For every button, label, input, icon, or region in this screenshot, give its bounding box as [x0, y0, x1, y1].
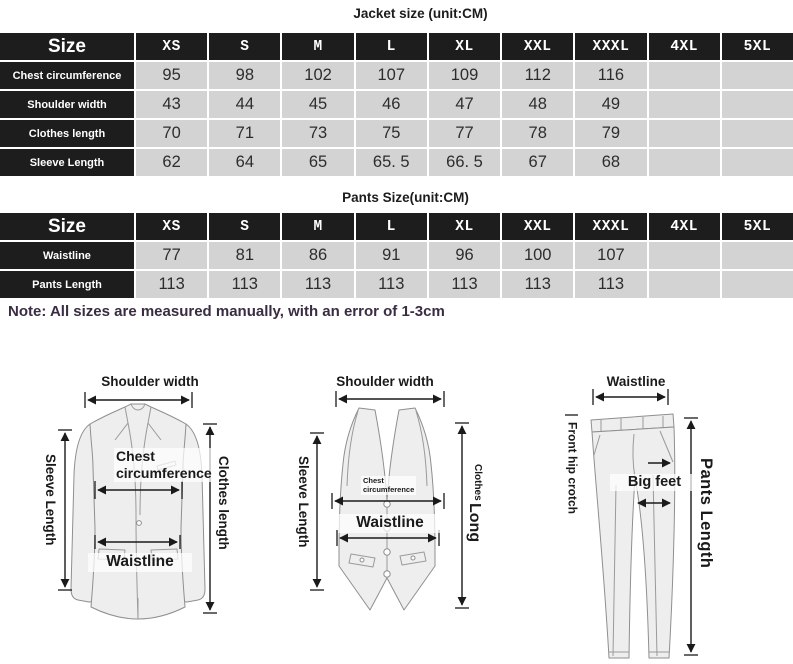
cell-chest-circumference-4xl	[649, 62, 720, 89]
cell-sleeve-length-xl: 66. 5	[429, 149, 500, 176]
cell-clothes-length-5xl	[722, 120, 793, 147]
jacket-sleeve-length-label: Sleeve Length	[42, 454, 58, 546]
cell-shoulder-width-l: 46	[356, 91, 427, 118]
row-label-sleeve-length: Sleeve Length	[0, 149, 134, 176]
cell-sleeve-length-s: 64	[209, 149, 280, 176]
jacket-clothes-length-label: Clothes length	[215, 456, 231, 550]
cell-chest-circumference-5xl	[722, 62, 793, 89]
vest-long-label: Long	[465, 503, 484, 542]
cell-clothes-length-s: 71	[209, 120, 280, 147]
column-header-xs: XS	[136, 213, 207, 240]
cell-pants-length-xl: 113	[429, 271, 500, 298]
column-header-xxxl: XXXL	[575, 213, 646, 240]
column-header-xxxl: XXXL	[575, 33, 646, 60]
cell-waistline-s: 81	[209, 242, 280, 269]
cell-shoulder-width-xxl: 48	[502, 91, 573, 118]
cell-waistline-xs: 77	[136, 242, 207, 269]
cell-waistline-m: 86	[282, 242, 353, 269]
cell-chest-circumference-l: 107	[356, 62, 427, 89]
cell-chest-circumference-xs: 95	[136, 62, 207, 89]
cell-waistline-l: 91	[356, 242, 427, 269]
cell-shoulder-width-xxxl: 49	[575, 91, 646, 118]
cell-pants-length-m: 113	[282, 271, 353, 298]
column-header-m: M	[282, 33, 353, 60]
cell-sleeve-length-xxxl: 68	[575, 149, 646, 176]
pants-size-table: SizeXSSMLXLXXLXXXL4XL5XLWaistline7781869…	[0, 213, 793, 298]
column-header-5xl: 5XL	[722, 33, 793, 60]
cell-pants-length-5xl	[722, 271, 793, 298]
column-header-l: L	[356, 213, 427, 240]
column-header-5xl: 5XL	[722, 213, 793, 240]
cell-shoulder-width-s: 44	[209, 91, 280, 118]
vest-clothes-label: Clothes	[471, 464, 483, 501]
size-corner-cell: Size	[0, 33, 134, 60]
vest-shoulder-width-label: Shoulder width	[330, 374, 440, 390]
cell-sleeve-length-xs: 62	[136, 149, 207, 176]
vest-drawing	[339, 408, 435, 610]
column-header-4xl: 4XL	[649, 213, 720, 240]
sleeve-length-arrow	[58, 430, 72, 590]
cell-sleeve-length-l: 65. 5	[356, 149, 427, 176]
row-label-shoulder-width: Shoulder width	[0, 91, 134, 118]
column-header-xxl: XXL	[502, 33, 573, 60]
cell-clothes-length-xxl: 78	[502, 120, 573, 147]
cell-pants-length-4xl	[649, 271, 720, 298]
cell-clothes-length-m: 73	[282, 120, 353, 147]
cell-chest-circumference-xxl: 112	[502, 62, 573, 89]
pants-measurement-diagram: Waistline Front hip crotch Big feet Pant…	[555, 372, 793, 664]
column-header-m: M	[282, 213, 353, 240]
pants-length-label: Pants Length	[695, 458, 715, 569]
cell-clothes-length-4xl	[649, 120, 720, 147]
row-label-clothes-length: Clothes length	[0, 120, 134, 147]
waistline-arrow	[593, 389, 668, 405]
jacket-chest-label-line2: circumference	[116, 465, 212, 482]
cell-chest-circumference-xxxl: 116	[575, 62, 646, 89]
cell-shoulder-width-xs: 43	[136, 91, 207, 118]
cell-chest-circumference-s: 98	[209, 62, 280, 89]
column-header-l: L	[356, 33, 427, 60]
jacket-shoulder-width-label: Shoulder width	[75, 374, 225, 390]
column-header-s: S	[209, 213, 280, 240]
cell-waistline-5xl	[722, 242, 793, 269]
column-header-xs: XS	[136, 33, 207, 60]
cell-waistline-xxxl: 107	[575, 242, 646, 269]
cell-clothes-length-xl: 77	[429, 120, 500, 147]
column-header-xxl: XXL	[502, 213, 573, 240]
cell-shoulder-width-xl: 47	[429, 91, 500, 118]
jacket-chest-label-line1: Chest	[116, 448, 212, 465]
pants-front-hip-crotch-label: Front hip crotch	[565, 422, 579, 514]
column-header-xl: XL	[429, 213, 500, 240]
cell-clothes-length-xs: 70	[136, 120, 207, 147]
pants-diagram-art	[555, 372, 793, 664]
column-header-xl: XL	[429, 33, 500, 60]
pants-table-title: Pants Size(unit:CM)	[9, 190, 793, 205]
cell-pants-length-l: 113	[356, 271, 427, 298]
pants-drawing	[591, 414, 675, 658]
size-chart-page: Jacket size (unit:CM) SizeXSSMLXLXXLXXXL…	[0, 0, 793, 664]
pants-waistline-label: Waistline	[596, 374, 676, 390]
jacket-size-table: SizeXSSMLXLXXLXXXL4XL5XLChest circumfere…	[0, 33, 793, 176]
jacket-table-title: Jacket size (unit:CM)	[24, 6, 793, 21]
column-header-s: S	[209, 33, 280, 60]
vest-measurement-diagram: Shoulder width Sleeve Length Chest circu…	[283, 372, 535, 664]
cell-chest-circumference-xl: 109	[429, 62, 500, 89]
pants-big-feet-label: Big feet	[610, 474, 699, 491]
vest-chest-label-line1: Chest	[363, 476, 414, 485]
vest-chest-label-line2: circumference	[363, 485, 414, 494]
jacket-measurement-diagram: Shoulder width Sleeve Length Chest circu…	[30, 372, 260, 664]
sleeve-length-arrow	[310, 433, 324, 590]
column-header-4xl: 4XL	[649, 33, 720, 60]
row-label-chest-circumference: Chest circumference	[0, 62, 134, 89]
cell-waistline-4xl	[649, 242, 720, 269]
cell-pants-length-xs: 113	[136, 271, 207, 298]
cell-pants-length-xxl: 113	[502, 271, 573, 298]
vest-waistline-label: Waistline	[338, 514, 442, 533]
cell-clothes-length-xxxl: 79	[575, 120, 646, 147]
jacket-waistline-label: Waistline	[88, 553, 192, 572]
vest-sleeve-length-label: Sleeve Length	[295, 456, 311, 548]
row-label-pants-length: Pants Length	[0, 271, 134, 298]
suit-jacket-drawing	[71, 404, 205, 619]
shoulder-width-arrow	[336, 391, 444, 407]
cell-waistline-xxl: 100	[502, 242, 573, 269]
cell-pants-length-xxxl: 113	[575, 271, 646, 298]
cell-shoulder-width-5xl	[722, 91, 793, 118]
cell-pants-length-s: 113	[209, 271, 280, 298]
cell-clothes-length-l: 75	[356, 120, 427, 147]
cell-sleeve-length-5xl	[722, 149, 793, 176]
cell-sleeve-length-xxl: 67	[502, 149, 573, 176]
cell-waistline-xl: 96	[429, 242, 500, 269]
cell-chest-circumference-m: 102	[282, 62, 353, 89]
cell-sleeve-length-m: 65	[282, 149, 353, 176]
row-label-waistline: Waistline	[0, 242, 134, 269]
cell-sleeve-length-4xl	[649, 149, 720, 176]
cell-shoulder-width-4xl	[649, 91, 720, 118]
cell-shoulder-width-m: 45	[282, 91, 353, 118]
measurement-note: Note: All sizes are measured manually, w…	[8, 303, 445, 320]
size-corner-cell: Size	[0, 213, 134, 240]
